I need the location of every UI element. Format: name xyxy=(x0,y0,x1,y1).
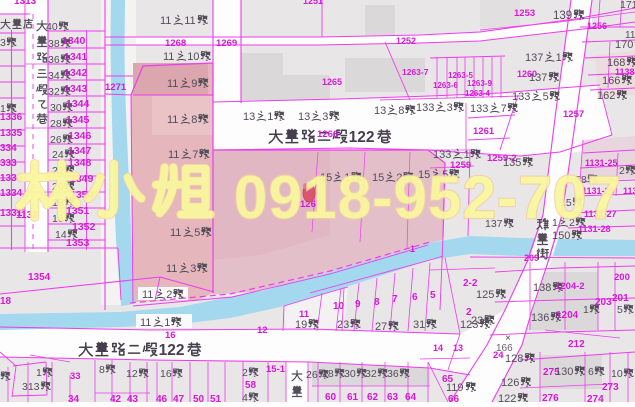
svg-text:66: 66 xyxy=(448,394,460,402)
svg-text:30: 30 xyxy=(344,368,356,380)
svg-text:12: 12 xyxy=(126,368,138,380)
svg-text:5: 5 xyxy=(543,91,549,103)
svg-text:1251: 1251 xyxy=(303,0,323,6)
svg-text:1343: 1343 xyxy=(64,83,88,95)
svg-text:113: 113 xyxy=(623,186,635,196)
svg-text:32: 32 xyxy=(48,86,60,98)
svg-text:1265: 1265 xyxy=(322,77,342,87)
svg-text:12: 12 xyxy=(257,325,268,336)
svg-text:123: 123 xyxy=(460,319,478,331)
svg-text:4: 4 xyxy=(242,392,248,402)
svg-text:133: 133 xyxy=(416,102,434,114)
svg-text:26: 26 xyxy=(306,369,318,381)
svg-text:36: 36 xyxy=(387,368,399,380)
svg-text:133: 133 xyxy=(470,103,488,115)
svg-text:10: 10 xyxy=(611,368,623,380)
svg-text:34: 34 xyxy=(48,70,60,82)
svg-text:1204-2: 1204-2 xyxy=(555,281,585,292)
svg-text:64: 64 xyxy=(405,392,417,402)
svg-text:1353: 1353 xyxy=(66,237,90,249)
svg-text:1261: 1261 xyxy=(473,126,495,137)
svg-text:274: 274 xyxy=(587,394,604,402)
svg-text:11: 11 xyxy=(167,114,178,126)
svg-text:2: 2 xyxy=(242,367,248,379)
svg-text:9: 9 xyxy=(355,299,361,310)
svg-text:1346: 1346 xyxy=(68,130,92,142)
svg-text:137: 137 xyxy=(525,52,543,64)
svg-text:1: 1 xyxy=(556,52,562,64)
svg-text:11: 11 xyxy=(184,15,195,27)
svg-text:122: 122 xyxy=(349,129,375,146)
svg-text:8: 8 xyxy=(191,114,197,126)
svg-text:1: 1 xyxy=(410,244,415,254)
svg-text:16: 16 xyxy=(165,330,176,341)
svg-text:3: 3 xyxy=(322,111,328,123)
svg-text:3: 3 xyxy=(447,102,453,114)
svg-text:1266: 1266 xyxy=(317,129,338,140)
svg-text:27: 27 xyxy=(375,321,387,333)
svg-text:1252: 1252 xyxy=(396,36,416,46)
svg-text:200: 200 xyxy=(614,272,630,283)
svg-text:11: 11 xyxy=(167,78,178,90)
svg-text:11: 11 xyxy=(168,149,179,161)
svg-text:1352: 1352 xyxy=(72,221,96,233)
svg-text:1269: 1269 xyxy=(216,38,237,49)
svg-text:138: 138 xyxy=(533,282,551,294)
svg-text:11: 11 xyxy=(170,227,181,239)
svg-text:122: 122 xyxy=(498,393,516,402)
svg-text:126: 126 xyxy=(501,377,519,389)
svg-text:61: 61 xyxy=(347,392,359,402)
svg-text:1138: 1138 xyxy=(615,67,635,77)
svg-text:128: 128 xyxy=(505,353,523,365)
svg-text:62: 62 xyxy=(367,392,379,402)
svg-text:113: 113 xyxy=(625,30,635,41)
svg-text:130: 130 xyxy=(555,366,573,378)
svg-text:137: 137 xyxy=(529,72,547,84)
svg-text:13: 13 xyxy=(453,343,463,353)
svg-text:125: 125 xyxy=(476,289,494,301)
svg-text:162: 162 xyxy=(597,90,615,102)
svg-text:26: 26 xyxy=(50,134,62,146)
svg-text:203: 203 xyxy=(595,297,612,308)
svg-text:28: 28 xyxy=(322,368,334,380)
svg-text:3: 3 xyxy=(190,263,196,275)
svg-text:50: 50 xyxy=(193,394,205,402)
svg-text:13: 13 xyxy=(243,111,255,123)
svg-text:1253: 1253 xyxy=(514,8,535,19)
svg-text:1336: 1336 xyxy=(0,112,23,123)
svg-text:34: 34 xyxy=(68,394,80,402)
svg-text:2-2: 2-2 xyxy=(463,278,478,289)
svg-text:8: 8 xyxy=(99,364,105,376)
svg-text:24: 24 xyxy=(493,350,504,361)
svg-text:31: 31 xyxy=(413,319,425,331)
svg-text:58: 58 xyxy=(245,380,257,391)
svg-text:133: 133 xyxy=(512,91,530,103)
svg-text:334: 334 xyxy=(0,143,17,154)
svg-text:11: 11 xyxy=(163,51,174,63)
svg-text:47: 47 xyxy=(173,394,185,402)
svg-text:212: 212 xyxy=(568,339,585,350)
svg-text:1263-4: 1263-4 xyxy=(465,89,490,98)
svg-text:16: 16 xyxy=(160,368,172,380)
svg-text:60: 60 xyxy=(325,392,337,402)
svg-text:13: 13 xyxy=(374,105,386,117)
svg-text:1340: 1340 xyxy=(62,35,86,47)
svg-text:122: 122 xyxy=(159,342,185,359)
svg-text:1271: 1271 xyxy=(105,82,127,93)
svg-text:7: 7 xyxy=(501,103,507,115)
svg-text:1256: 1256 xyxy=(587,21,607,31)
svg-text:23: 23 xyxy=(337,319,349,331)
svg-text:1334: 1334 xyxy=(0,188,23,199)
svg-text:3: 3 xyxy=(0,37,6,49)
svg-text:19: 19 xyxy=(295,319,307,331)
svg-text:1204: 1204 xyxy=(556,310,579,321)
svg-text:13: 13 xyxy=(298,111,310,123)
svg-text:1313: 1313 xyxy=(14,0,37,7)
svg-text:14: 14 xyxy=(433,343,443,353)
svg-text:15-1: 15-1 xyxy=(266,364,286,375)
svg-text:10: 10 xyxy=(333,301,345,312)
svg-text:8: 8 xyxy=(398,105,404,117)
svg-text:1263-9: 1263-9 xyxy=(467,79,492,88)
svg-text:0918-952-707: 0918-952-707 xyxy=(234,164,622,231)
svg-text:1345: 1345 xyxy=(66,114,90,126)
svg-text:1335: 1335 xyxy=(0,128,23,139)
svg-text:209: 209 xyxy=(524,253,539,263)
svg-text:150: 150 xyxy=(552,230,570,242)
svg-text:7: 7 xyxy=(192,149,198,161)
svg-text:5: 5 xyxy=(617,304,623,316)
svg-text:8: 8 xyxy=(374,297,380,308)
svg-text:273: 273 xyxy=(602,382,619,393)
svg-text:201: 201 xyxy=(612,293,629,304)
svg-text:1347: 1347 xyxy=(68,145,92,157)
svg-text:11: 11 xyxy=(142,289,153,301)
svg-text:28: 28 xyxy=(50,118,62,130)
svg-text:1344: 1344 xyxy=(66,98,90,110)
svg-text:1348: 1348 xyxy=(68,157,92,169)
svg-text:36: 36 xyxy=(48,54,60,66)
svg-text:133: 133 xyxy=(433,149,451,161)
svg-text:1: 1 xyxy=(36,367,42,379)
svg-text:1268: 1268 xyxy=(165,38,186,49)
svg-text:1342: 1342 xyxy=(64,67,88,79)
svg-text:1263-7: 1263-7 xyxy=(402,67,429,77)
svg-text:11: 11 xyxy=(166,263,177,275)
svg-text:42: 42 xyxy=(110,394,122,402)
svg-text:30: 30 xyxy=(50,102,62,114)
svg-text:11: 11 xyxy=(140,317,151,329)
svg-text:119: 119 xyxy=(446,382,464,394)
svg-text:5: 5 xyxy=(430,290,436,301)
svg-text:10: 10 xyxy=(187,51,199,63)
svg-text:2: 2 xyxy=(166,289,172,301)
svg-text:313: 313 xyxy=(22,381,40,393)
svg-text:9: 9 xyxy=(191,78,197,90)
svg-text:1: 1 xyxy=(583,304,589,316)
svg-text:33: 33 xyxy=(70,371,81,382)
svg-text:276: 276 xyxy=(542,393,559,402)
svg-text:333: 333 xyxy=(0,158,17,169)
svg-text:1: 1 xyxy=(164,317,170,329)
svg-text:5: 5 xyxy=(194,227,200,239)
svg-text:6: 6 xyxy=(412,292,418,303)
svg-text:51: 51 xyxy=(210,394,222,402)
svg-text:1: 1 xyxy=(267,111,273,123)
svg-text:1354: 1354 xyxy=(28,272,51,283)
svg-text:1341: 1341 xyxy=(64,51,88,63)
svg-text:43: 43 xyxy=(127,394,139,402)
svg-text:63: 63 xyxy=(387,392,399,402)
svg-text:18: 18 xyxy=(0,296,12,307)
svg-text:136: 136 xyxy=(531,312,549,324)
svg-text:11: 11 xyxy=(160,15,171,27)
svg-text:171: 171 xyxy=(620,0,635,11)
svg-text:1257: 1257 xyxy=(563,109,584,120)
svg-text:7: 7 xyxy=(392,294,398,305)
svg-text:46: 46 xyxy=(156,394,168,402)
svg-text:1263-6: 1263-6 xyxy=(433,81,458,90)
svg-text:6: 6 xyxy=(588,366,594,378)
svg-text:40: 40 xyxy=(46,21,58,33)
svg-text:139: 139 xyxy=(553,10,572,22)
svg-text:38: 38 xyxy=(48,38,60,50)
svg-text:32: 32 xyxy=(365,368,377,380)
